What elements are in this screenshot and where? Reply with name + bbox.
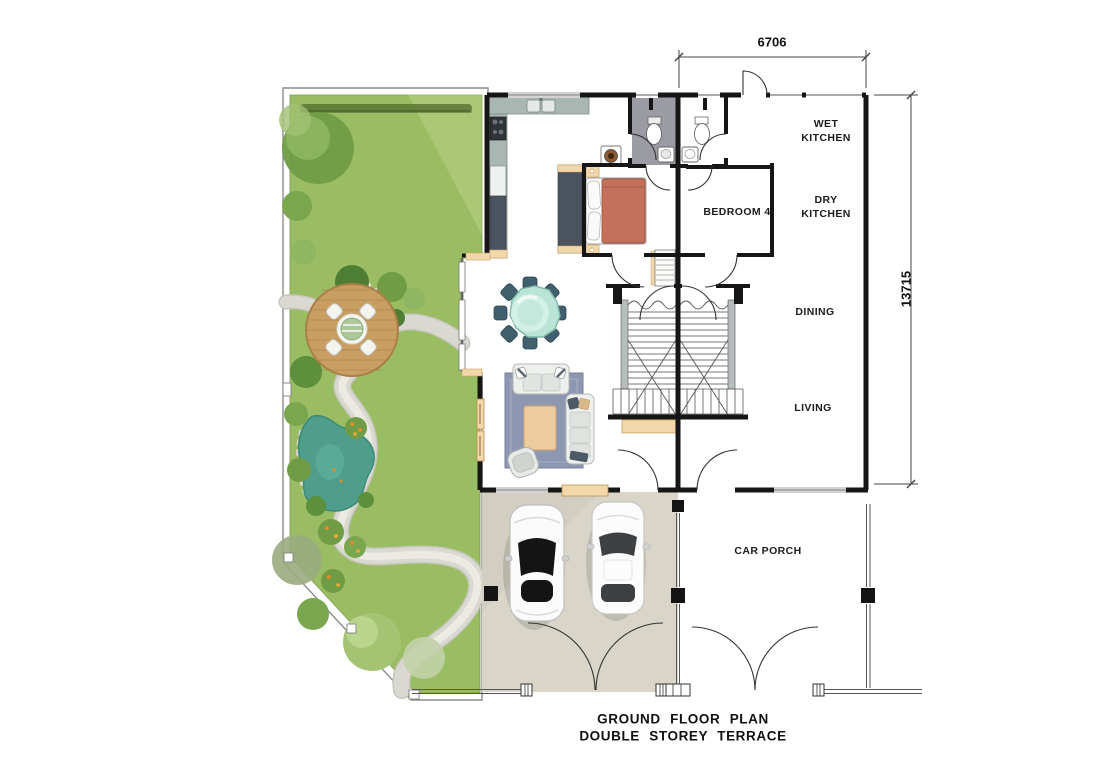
door-stair-right bbox=[682, 286, 716, 320]
door-entrance-left bbox=[618, 450, 658, 490]
hedge-shadow bbox=[300, 110, 472, 113]
gate-right-leaf2 bbox=[755, 627, 818, 690]
stove bbox=[490, 117, 506, 140]
label-car-porch: CAR PORCH bbox=[734, 544, 801, 558]
tall-cabinet bbox=[490, 196, 506, 252]
dimension-width-value: 6706 bbox=[758, 35, 787, 50]
bathroom-right-fixtures bbox=[682, 117, 710, 162]
dining-set bbox=[494, 277, 566, 349]
garden bbox=[272, 88, 488, 700]
window-kitchen-top bbox=[508, 92, 580, 98]
flower-bush bbox=[345, 417, 367, 439]
label-living: LIVING bbox=[794, 401, 831, 415]
door-bath-right-out bbox=[688, 166, 712, 190]
bedroom-left bbox=[558, 165, 646, 256]
label-dry-kitchen: DRY KITCHEN bbox=[801, 193, 850, 221]
window-bath-left-top bbox=[636, 92, 658, 98]
plan-subtitle: DOUBLE STOREY TERRACE bbox=[579, 729, 786, 744]
bay-windows bbox=[459, 253, 490, 376]
window-wet-kitchen-top bbox=[770, 92, 862, 98]
car-sport bbox=[503, 505, 569, 630]
dimension-height-value: 13715 bbox=[899, 271, 914, 307]
window-living-right bbox=[774, 487, 846, 493]
dimension-top bbox=[675, 50, 870, 88]
car-sedan bbox=[586, 502, 650, 621]
door-back bbox=[743, 71, 767, 95]
deck-table bbox=[337, 314, 367, 344]
cabinet-cap bbox=[489, 250, 507, 258]
wardrobe bbox=[558, 165, 582, 253]
stair-step-timber bbox=[622, 420, 676, 433]
label-wet-kitchen: WET KITCHEN bbox=[801, 117, 850, 145]
door-bedroom-left bbox=[612, 255, 644, 287]
plan-title: GROUND FLOOR PLAN bbox=[597, 712, 769, 727]
window-bath-right-top bbox=[698, 92, 720, 98]
door-stair-left bbox=[640, 286, 674, 320]
floor-plan-drawing bbox=[0, 0, 1116, 771]
living-room bbox=[505, 364, 594, 480]
car-porch bbox=[412, 492, 922, 696]
coffee-table bbox=[524, 406, 556, 450]
sofa-chaise bbox=[566, 394, 594, 464]
window-living-left bbox=[496, 487, 548, 493]
door-bedroom-right bbox=[705, 255, 737, 287]
door-entrance-right bbox=[697, 450, 737, 490]
gate-right-leaf1 bbox=[692, 627, 755, 690]
fridge bbox=[490, 166, 506, 196]
floor-plan-page: WET KITCHEN DRY KITCHEN BEDROOM 4 DINING… bbox=[0, 0, 1116, 771]
label-dining: DINING bbox=[795, 305, 834, 319]
garden-deck bbox=[306, 284, 398, 376]
bed bbox=[586, 178, 646, 244]
sliding-door-south bbox=[562, 485, 608, 496]
door-bath-left-out bbox=[646, 166, 670, 190]
label-bedroom4: BEDROOM 4 bbox=[703, 205, 770, 219]
sofa-two-seat bbox=[513, 364, 569, 394]
